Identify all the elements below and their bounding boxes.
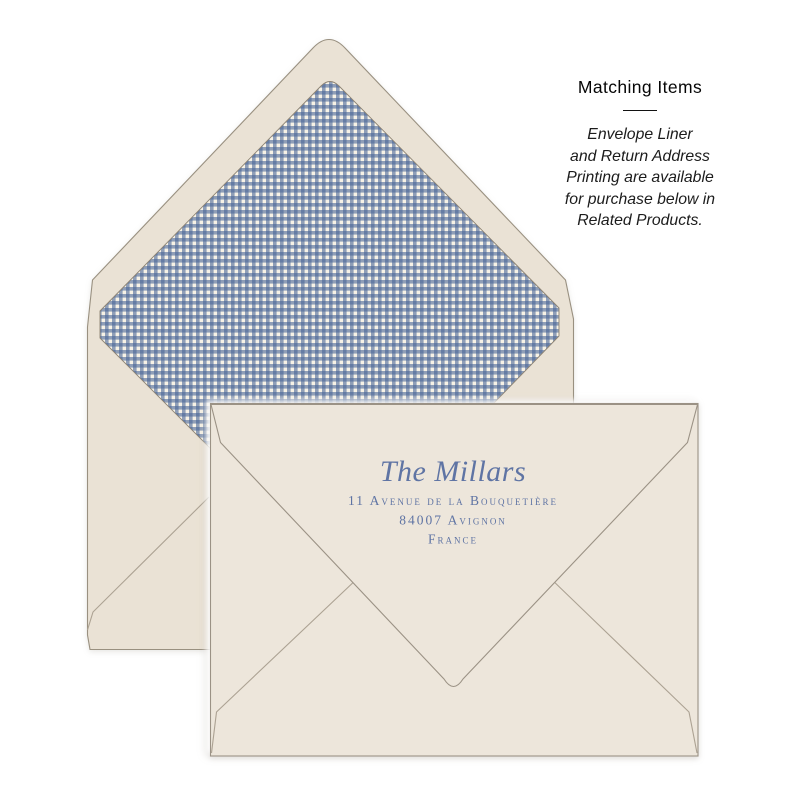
return-address-street: 11 Avenue de la Bouquetière (348, 493, 558, 508)
addressed-envelope: The Millars 11 Avenue de la Bouquetière … (211, 404, 699, 757)
product-image: The Millars 11 Avenue de la Bouquetière … (0, 0, 800, 800)
divider-rule (623, 110, 657, 111)
return-address-city: 84007 Avignon (399, 513, 507, 528)
matching-items-line-3: Printing are available (560, 167, 720, 189)
matching-items-body: Envelope Liner and Return Address Printi… (560, 124, 720, 232)
matching-items-line-1: Envelope Liner (560, 124, 720, 146)
matching-items-line-2: and Return Address (560, 146, 720, 168)
return-address-name: The Millars (380, 455, 526, 488)
matching-items-line-4: for purchase below in (560, 189, 720, 211)
return-address-country: France (428, 532, 478, 547)
matching-items-heading: Matching Items (560, 77, 720, 98)
matching-items-panel: Matching Items Envelope Liner and Return… (560, 77, 720, 232)
matching-items-line-5: Related Products. (560, 210, 720, 232)
